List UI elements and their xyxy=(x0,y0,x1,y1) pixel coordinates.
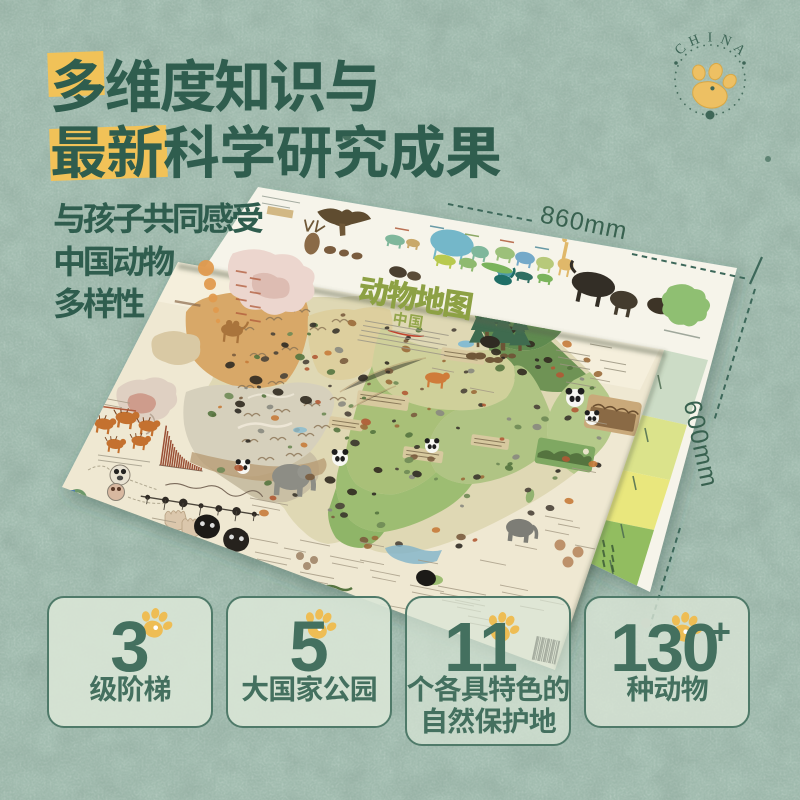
svg-text:5: 5 xyxy=(289,608,329,687)
svg-text:3: 3 xyxy=(110,608,150,687)
svg-text:I: I xyxy=(708,31,713,46)
svg-text:130: 130 xyxy=(610,610,718,686)
svg-text:11: 11 xyxy=(444,608,518,686)
svg-text:+: + xyxy=(710,611,731,652)
